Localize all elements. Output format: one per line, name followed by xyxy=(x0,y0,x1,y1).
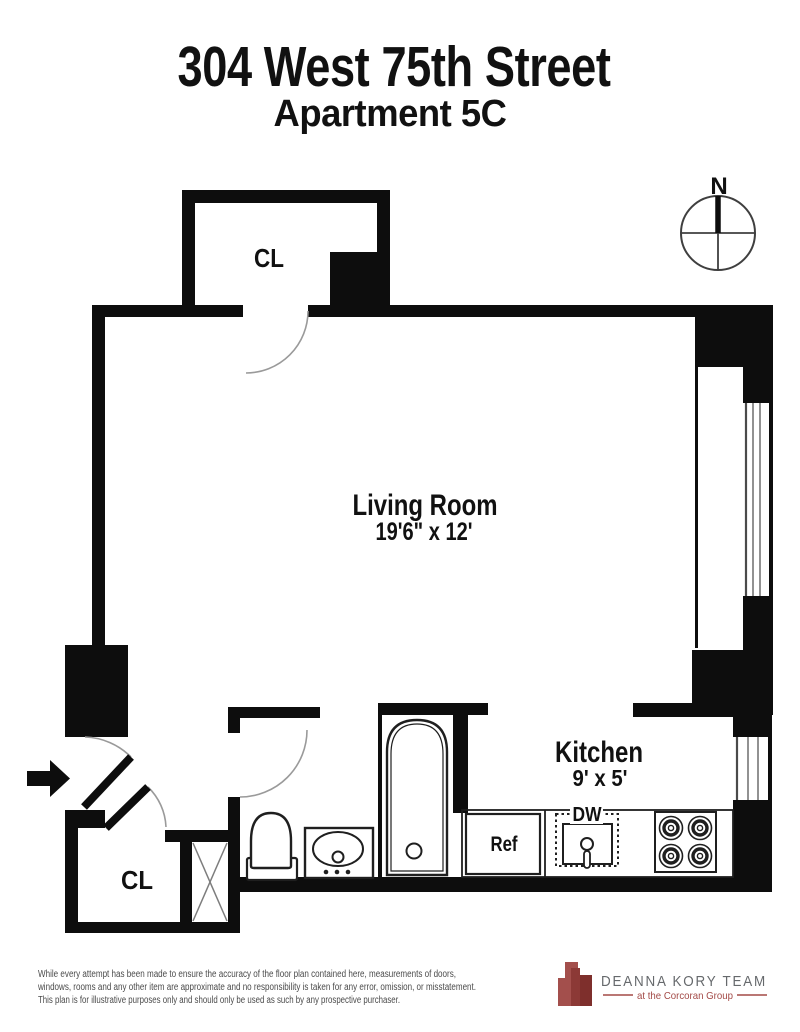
wall-kitchen-window-bottom xyxy=(733,800,772,878)
closet-top-label: CL xyxy=(254,243,284,273)
wall-bottom xyxy=(240,877,772,892)
page-title: 304 West 75th Street xyxy=(178,35,611,99)
wall-bath-top xyxy=(228,707,320,718)
door-swings xyxy=(85,311,308,827)
logo-team-name: DEANNA KORY TEAM xyxy=(601,973,767,990)
closet-entry-label: CL xyxy=(121,865,153,895)
stove xyxy=(655,812,716,872)
wall-right-upper xyxy=(743,367,773,403)
wall-entry-block xyxy=(65,645,128,737)
kitchen-sink-drain xyxy=(581,838,593,850)
floor-plan-canvas: 304 West 75th Street Apartment 5C N xyxy=(0,0,800,1032)
wall-right-lower xyxy=(743,596,773,650)
page-subtitle: Apartment 5C xyxy=(274,93,507,135)
wall-kitchen-window-top xyxy=(733,715,772,737)
wall-closet-block xyxy=(330,252,377,312)
compass-north-label: N xyxy=(710,173,727,200)
sink-drain xyxy=(333,852,344,863)
inner-door-leaf xyxy=(106,787,148,828)
entry-door-arc xyxy=(85,737,131,757)
toilet-bowl xyxy=(251,813,291,868)
entry-door-leaf xyxy=(84,757,131,807)
living-room-dims: 19'6" x 12' xyxy=(376,518,473,546)
wall-tub-right xyxy=(453,715,468,813)
entry-arrow-head xyxy=(50,760,70,797)
bathroom-fixtures xyxy=(247,720,447,880)
refrigerator-label: Ref xyxy=(491,833,519,856)
shaft-x-box xyxy=(193,843,227,921)
disclaimer: While every attempt has been made to ens… xyxy=(37,969,476,1006)
bathtub-drain xyxy=(407,844,422,859)
wall-tub-left-thin xyxy=(378,715,382,877)
disclaimer-line: windows, rooms and any other item are ap… xyxy=(37,982,476,993)
disclaimer-line: While every attempt has been made to ens… xyxy=(38,969,456,980)
wall-kitchen-window-edge xyxy=(768,737,772,800)
sink-dot xyxy=(324,870,329,875)
wall-right-outer-edge xyxy=(769,403,773,596)
wall-right-corner-top xyxy=(695,305,773,367)
dishwasher-label: DW xyxy=(573,804,602,826)
wall-cl-left xyxy=(65,810,78,933)
entry-arrow-shaft xyxy=(27,771,50,786)
wall-closet-left xyxy=(182,190,195,312)
logo-building-icon xyxy=(571,968,580,1006)
logo-tagline: at the Corcoran Group xyxy=(637,990,733,1002)
wall-top-right xyxy=(308,305,695,317)
wall-bath-jamb xyxy=(228,718,240,733)
wall-right-inner-line xyxy=(695,367,698,648)
closet-top-door-arc xyxy=(246,311,308,373)
bathroom-door-arc xyxy=(240,730,307,797)
entry-arrow-icon xyxy=(27,760,70,797)
brand-logo: DEANNA KORY TEAM at the Corcoran Group xyxy=(558,962,767,1006)
wall-right-corner-bottom xyxy=(692,650,773,715)
wall-closet-right xyxy=(377,203,390,312)
kitchen-faucet-icon xyxy=(584,851,590,868)
sink-dot xyxy=(335,870,340,875)
sink-dot xyxy=(346,870,351,875)
wall-cl-bottom xyxy=(65,922,240,933)
wall-tub-top xyxy=(378,703,488,715)
floor-plan-page: 304 West 75th Street Apartment 5C N xyxy=(0,0,800,1032)
wall-closet-top xyxy=(182,190,390,203)
inner-door-arc xyxy=(148,787,166,827)
logo-building-icon xyxy=(580,975,592,1006)
wall-cl-right xyxy=(180,830,192,933)
wall-left xyxy=(92,305,105,650)
compass: N xyxy=(681,173,755,270)
kitchen-dims: 9' x 5' xyxy=(573,765,628,791)
wall-top-left xyxy=(92,305,243,317)
disclaimer-line: This plan is for illustrative purposes o… xyxy=(38,995,400,1006)
wall-bath-left xyxy=(228,797,240,933)
